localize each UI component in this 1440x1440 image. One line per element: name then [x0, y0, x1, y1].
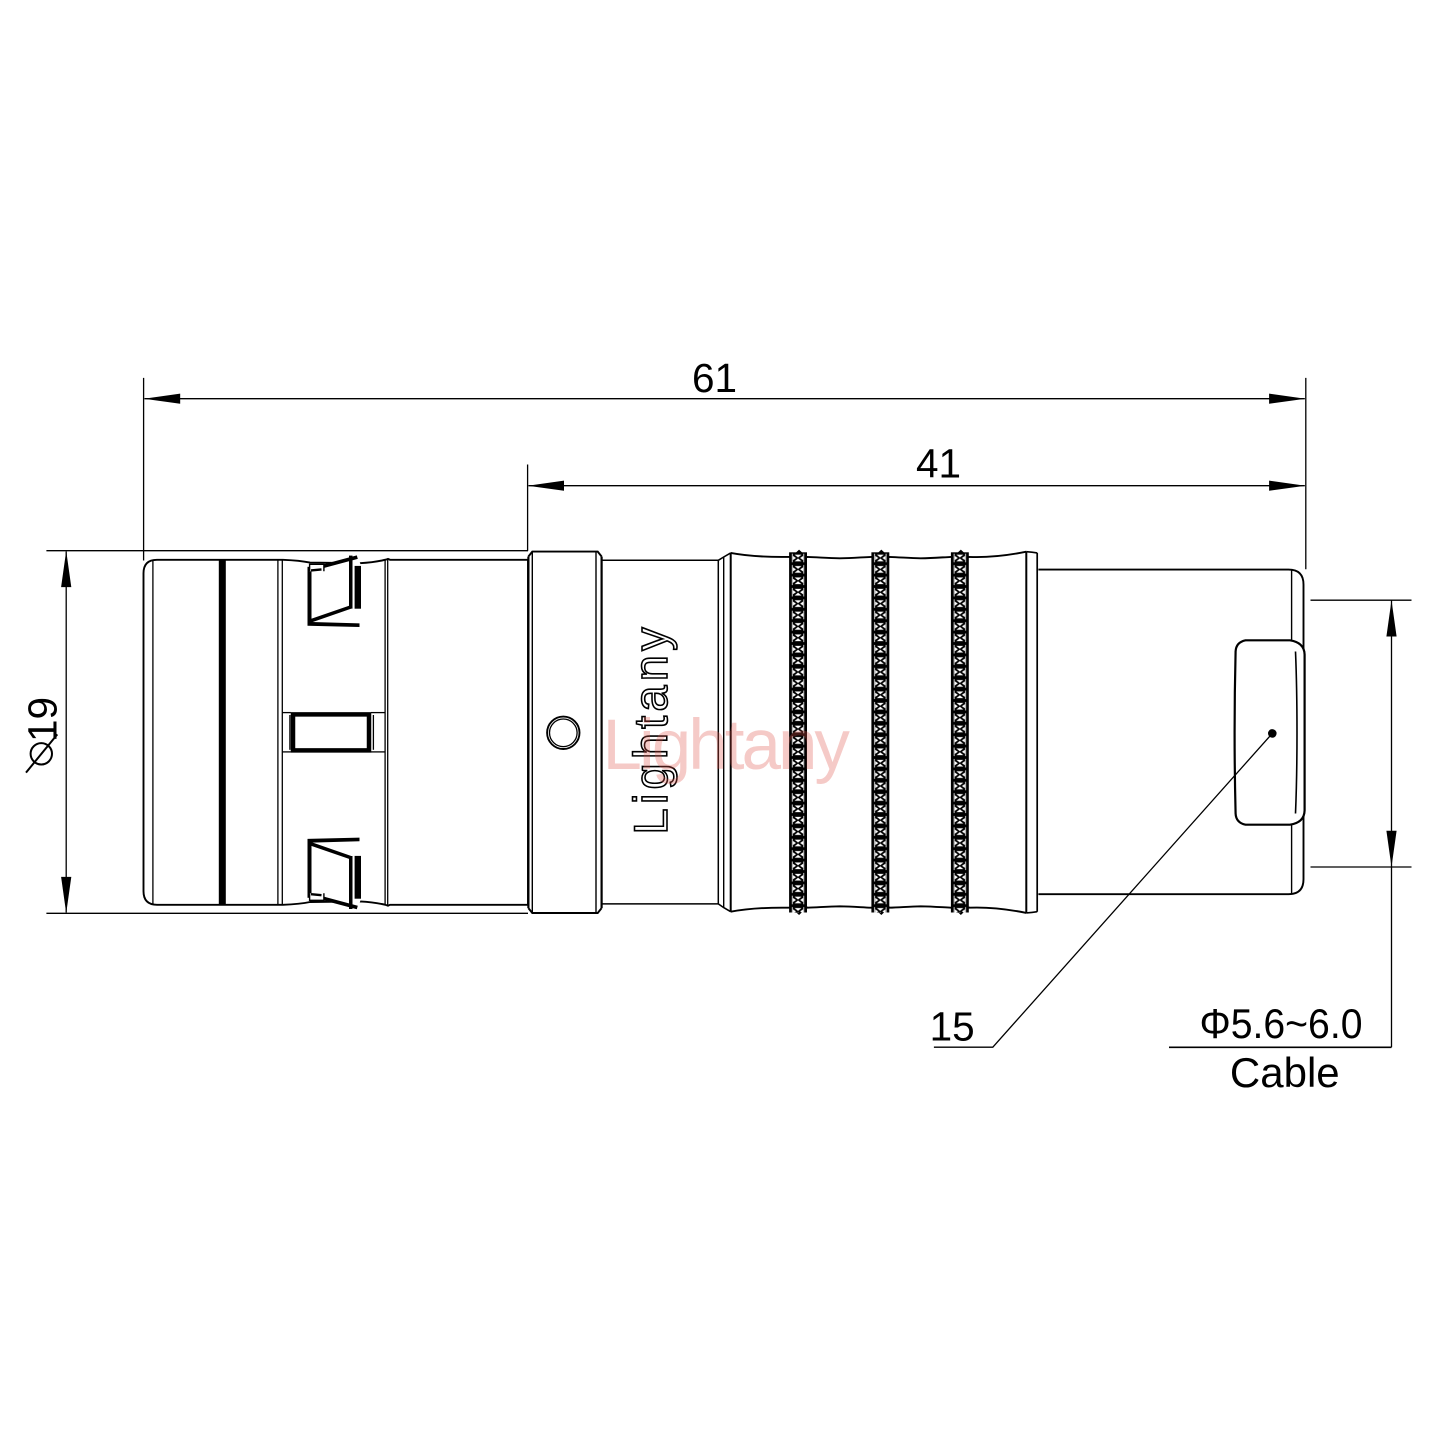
svg-text:15: 15	[930, 1004, 975, 1050]
svg-text:61: 61	[692, 355, 737, 401]
svg-text:41: 41	[916, 441, 961, 487]
svg-text:19: 19	[20, 697, 66, 742]
svg-text:Cable: Cable	[1230, 1049, 1340, 1096]
svg-text:Φ5.6~6.0: Φ5.6~6.0	[1200, 1000, 1363, 1047]
svg-text:Lightany: Lightany	[603, 706, 851, 785]
